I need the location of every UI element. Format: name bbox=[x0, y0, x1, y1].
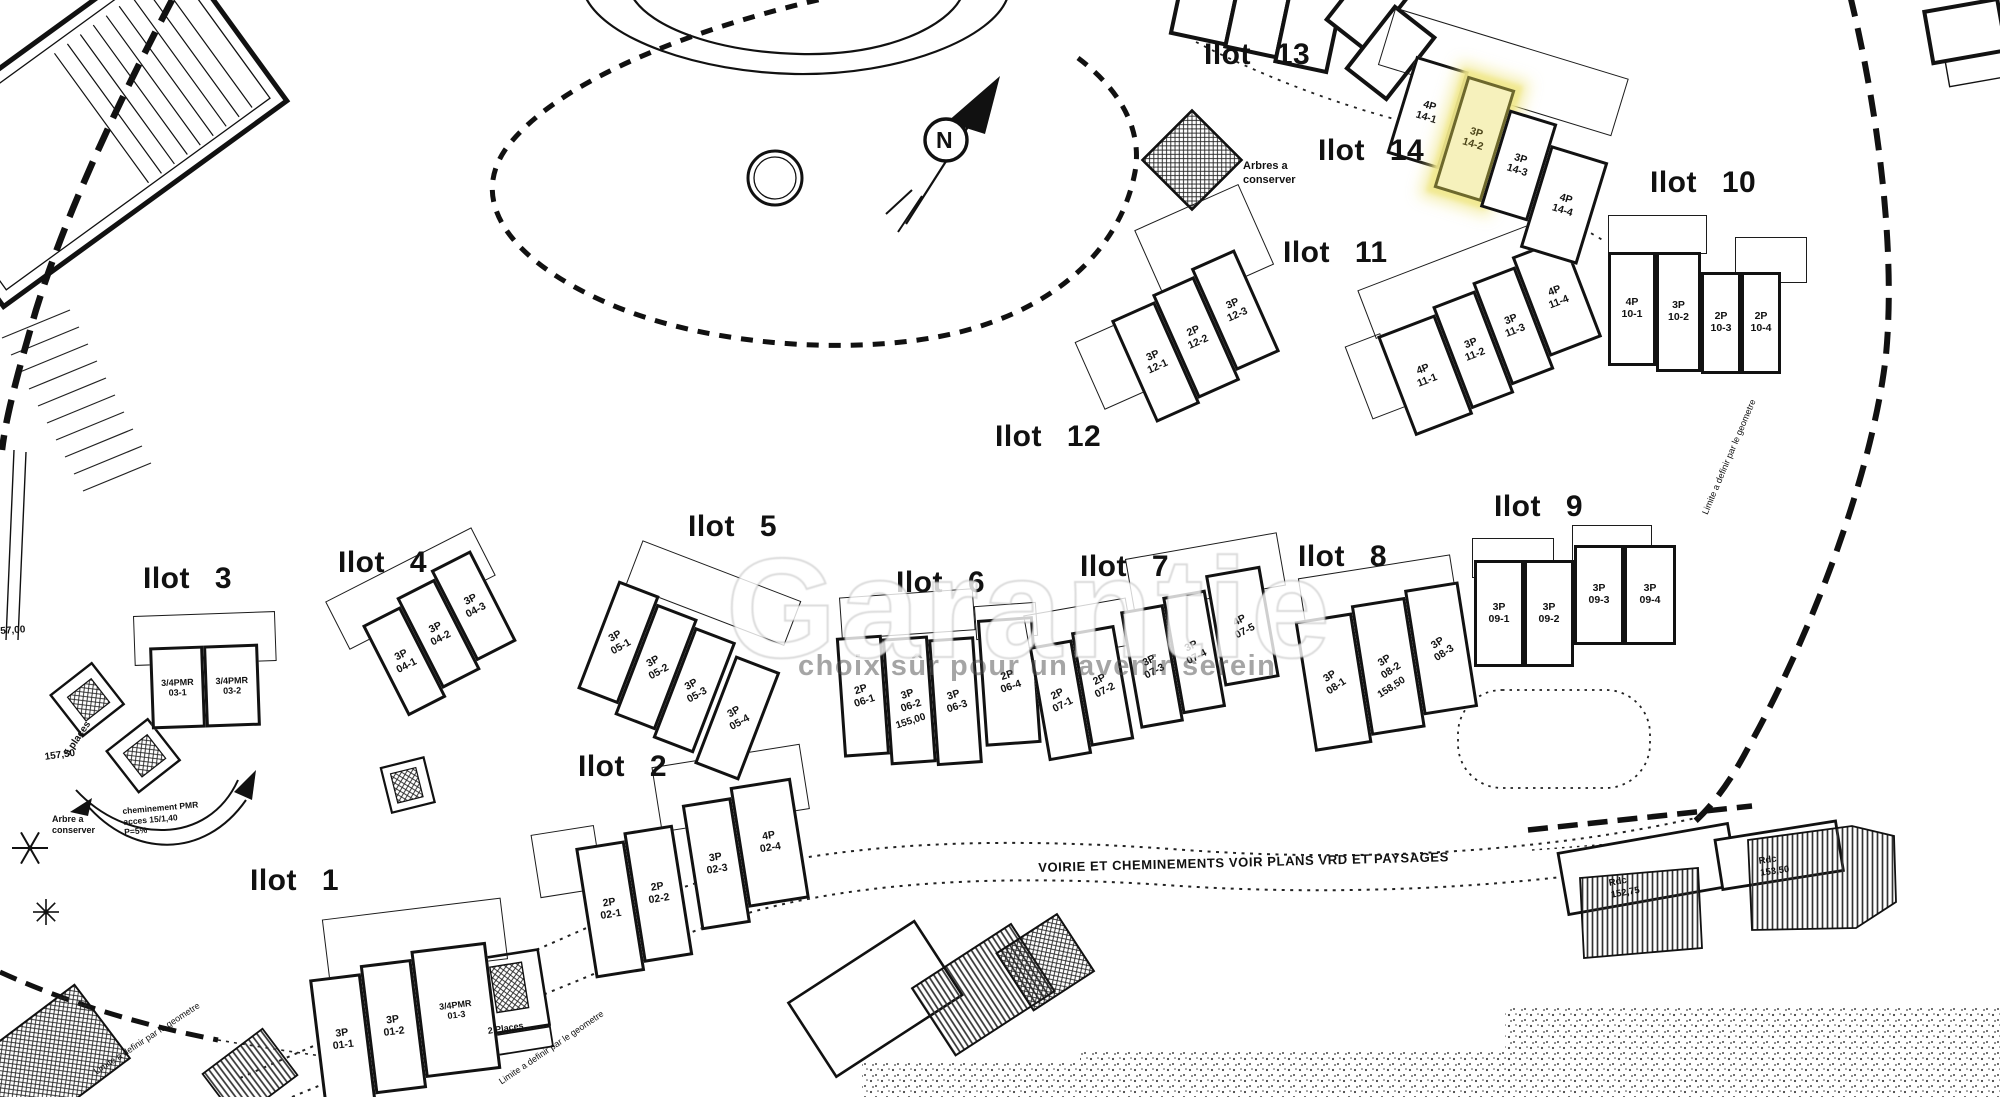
unit-label-09-3: 3P09-3 bbox=[1577, 548, 1621, 642]
unit-number: 01-3 bbox=[447, 1009, 466, 1021]
bottom-left-hatched-1 bbox=[0, 985, 130, 1097]
unit-number: 02-1 bbox=[600, 908, 623, 923]
unit-label-03-2: 3/4PMR03-2 bbox=[206, 647, 258, 725]
utility-box bbox=[381, 757, 435, 812]
unit-cell-03-2[interactable]: 3/4PMR03-2 bbox=[203, 644, 261, 728]
fountain-circle bbox=[748, 151, 802, 205]
unit-cell-03-1[interactable]: 3/4PMR03-1 bbox=[149, 646, 206, 730]
bottom-right-building-2 bbox=[1748, 826, 1896, 930]
stipple-texture-3 bbox=[862, 1062, 1082, 1097]
unit-cell-09-2[interactable]: 3P09-2 bbox=[1524, 560, 1574, 667]
unit-type: 3/4PMR bbox=[215, 675, 248, 686]
unit-number: 10-2 bbox=[1668, 312, 1689, 324]
unit-cell-01-3[interactable]: 3/4PMR01-3 bbox=[410, 942, 501, 1078]
unit-number: 10-4 bbox=[1750, 323, 1771, 335]
left-edge-line bbox=[6, 450, 26, 640]
unit-number: 09-1 bbox=[1488, 614, 1509, 626]
unit-number: 02-2 bbox=[648, 892, 671, 907]
preserved-trees-icon bbox=[1143, 111, 1242, 210]
existing-building bbox=[0, 0, 287, 307]
unit-number: 02-3 bbox=[706, 862, 729, 877]
unit-number: 01-1 bbox=[332, 1039, 354, 1053]
unit-label-10-2: 3P10-2 bbox=[1659, 255, 1698, 369]
stipple-texture-2 bbox=[1080, 1052, 1510, 1097]
unit-cell-10-1[interactable]: 4P10-1 bbox=[1608, 252, 1656, 366]
boundary-right bbox=[1692, 0, 1889, 824]
bottom-right-building-1 bbox=[1580, 868, 1702, 958]
pmr-curved-path bbox=[70, 770, 256, 845]
parking-structure-1 bbox=[51, 663, 124, 736]
tree-icon-2 bbox=[33, 899, 59, 925]
site-plan-linework bbox=[0, 0, 2000, 1097]
unit-label-09-4: 3P09-4 bbox=[1627, 548, 1673, 642]
unit-label-09-1: 3P09-1 bbox=[1477, 563, 1521, 664]
unit-cell-09-4[interactable]: 3P09-4 bbox=[1624, 545, 1676, 645]
unit-cell-10-2[interactable]: 3P10-2 bbox=[1656, 252, 1701, 372]
unit-number: 03-1 bbox=[169, 687, 187, 698]
unit-label-03-1: 3/4PMR03-1 bbox=[152, 649, 203, 727]
unit-label-10-3: 2P10-3 bbox=[1704, 275, 1738, 371]
unit-cell-10-3[interactable]: 2P10-3 bbox=[1701, 272, 1741, 374]
unit-number: 09-3 bbox=[1588, 595, 1609, 607]
pond-outline bbox=[585, 0, 1008, 74]
unit-number: 09-2 bbox=[1538, 614, 1559, 626]
unit-type: 3P bbox=[1493, 602, 1506, 614]
parking-structure-2 bbox=[107, 719, 180, 792]
tree-icon-1 bbox=[12, 832, 48, 863]
unit-label-01-3: 3/4PMR01-3 bbox=[414, 945, 498, 1075]
unit-number: 01-2 bbox=[383, 1025, 405, 1039]
unit-label-09-2: 3P09-2 bbox=[1527, 563, 1571, 664]
unit-label-10-4: 2P10-4 bbox=[1744, 275, 1778, 371]
stipple-texture-1 bbox=[1505, 1008, 2000, 1097]
unit-cell-09-1[interactable]: 3P09-1 bbox=[1474, 560, 1524, 667]
unit-number: 10-3 bbox=[1710, 323, 1731, 335]
unit-number: 03-2 bbox=[223, 685, 241, 696]
green-area-boundary bbox=[492, 0, 1136, 345]
unit-number: 09-4 bbox=[1639, 595, 1660, 607]
slope-hatching bbox=[2, 310, 151, 491]
north-compass-icon bbox=[886, 76, 1000, 232]
unit-cell-10-4[interactable]: 2P10-4 bbox=[1741, 272, 1781, 374]
unit-cell-09-3[interactable]: 3P09-3 bbox=[1574, 545, 1624, 645]
fountain-circle-inner bbox=[754, 157, 796, 199]
unit-type: 3/4PMR bbox=[161, 677, 194, 688]
corner-building-top-right bbox=[1924, 0, 2000, 89]
unit-number: 02-4 bbox=[759, 841, 782, 856]
pond-outline-inner bbox=[632, 0, 962, 54]
site-plan: 3P01-13P01-23/4PMR01-32P02-12P02-23P02-3… bbox=[0, 0, 2000, 1097]
unit-type: 3P bbox=[1543, 602, 1556, 614]
basin-dotted-outline bbox=[1458, 690, 1650, 788]
unit-number: 10-1 bbox=[1621, 309, 1642, 321]
unit-label-10-1: 4P10-1 bbox=[1611, 255, 1653, 363]
ilot-13-building bbox=[1170, 0, 1347, 72]
